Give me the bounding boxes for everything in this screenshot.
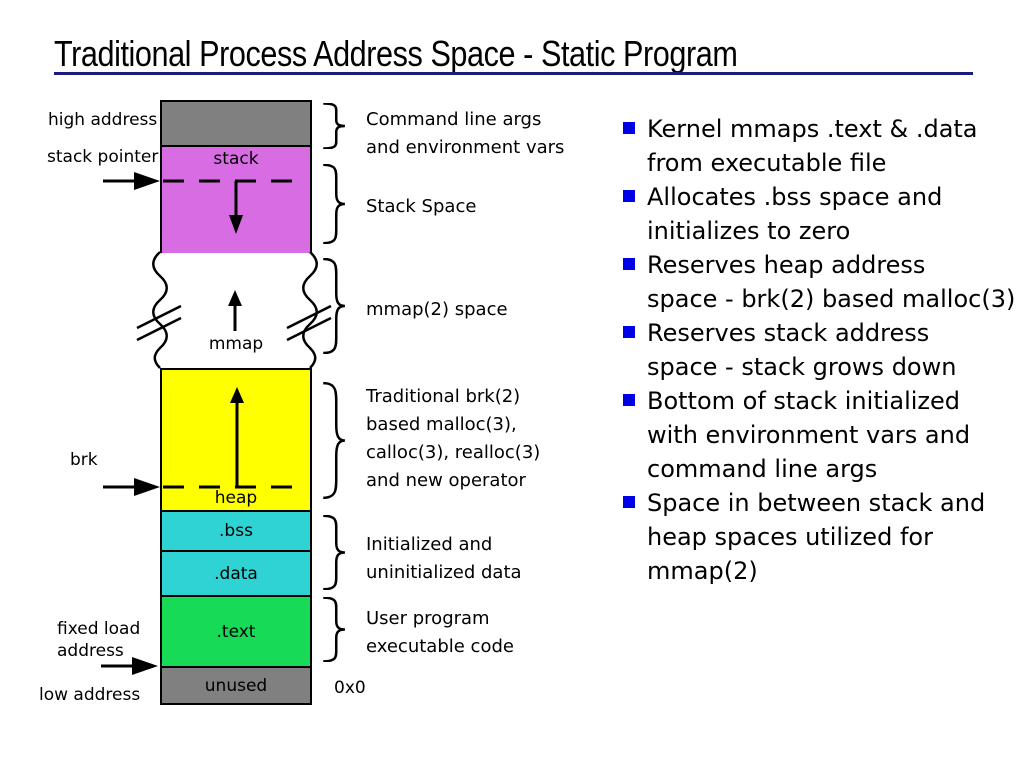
bullet-text: Allocates .bss space and initializes to …	[647, 180, 942, 248]
brace-icon	[320, 164, 346, 244]
memory-box-args-env	[160, 100, 312, 149]
box-label: stack	[213, 149, 258, 169]
brace-label-args-env: Command line args and environment vars	[366, 106, 564, 162]
bullet-text: Bottom of stack initialized with environ…	[647, 384, 970, 486]
bullet-list: Kernel mmaps .text & .data from executab…	[623, 112, 1023, 588]
label-stack-pointer: stack pointer	[47, 146, 158, 168]
brace-label-mmap-space: mmap(2) space	[366, 296, 508, 324]
label-brk: brk	[70, 449, 98, 471]
box-label: unused	[205, 676, 267, 696]
list-item: Space in between stack and heap spaces u…	[623, 486, 1023, 588]
bullet-square-icon	[623, 326, 635, 338]
bullet-square-icon	[623, 122, 635, 134]
brace-icon	[320, 382, 346, 499]
memory-box-text: .text	[160, 595, 312, 668]
list-item: Reserves heap address space - brk(2) bas…	[623, 248, 1023, 316]
brace-icon	[320, 597, 346, 662]
list-item: Reserves stack address space - stack gro…	[623, 316, 1023, 384]
memory-box-mmap: mmap	[160, 253, 312, 368]
box-label: heap	[215, 488, 257, 508]
bullet-square-icon	[623, 394, 635, 406]
memory-box-data: .data	[160, 550, 312, 597]
brace-icon	[320, 258, 346, 354]
box-label: .data	[214, 564, 258, 584]
stack-pointer-arrow	[103, 172, 160, 190]
brk-arrow	[103, 478, 160, 496]
bullet-text: Space in between stack and heap spaces u…	[647, 486, 985, 588]
box-label: mmap	[209, 334, 263, 354]
page-title: Traditional Process Address Space - Stat…	[54, 33, 737, 75]
slide: Traditional Process Address Space - Stat…	[0, 0, 1024, 768]
label-high-address: high address	[48, 109, 157, 131]
memory-box-bss: .bss	[160, 510, 312, 552]
brace-label-data-bss: Initialized and uninitialized data	[366, 531, 522, 587]
brace-label-user-code: User program executable code	[366, 605, 514, 661]
label-origin-0x0: 0x0	[334, 677, 366, 699]
label-fixed-load-address: fixed load address	[57, 618, 140, 662]
memory-box-unused: unused	[160, 666, 312, 705]
memory-box-stack: stack	[160, 145, 312, 255]
bullet-text: Kernel mmaps .text & .data from executab…	[647, 112, 978, 180]
label-low-address: low address	[39, 684, 140, 706]
bullet-text: Reserves heap address space - brk(2) bas…	[647, 248, 1015, 316]
bullet-square-icon	[623, 190, 635, 202]
brace-icon	[320, 103, 346, 149]
bullet-square-icon	[623, 258, 635, 270]
memory-box-heap: heap	[160, 368, 312, 512]
box-label: .text	[217, 622, 256, 642]
brace-icon	[320, 515, 346, 590]
brace-label-heap-malloc: Traditional brk(2) based malloc(3), call…	[366, 383, 540, 495]
brace-label-stack-space: Stack Space	[366, 193, 476, 221]
title-underline	[54, 72, 973, 75]
list-item: Kernel mmaps .text & .data from executab…	[623, 112, 1023, 180]
bullet-square-icon	[623, 496, 635, 508]
list-item: Allocates .bss space and initializes to …	[623, 180, 1023, 248]
box-label: .bss	[219, 521, 253, 541]
list-item: Bottom of stack initialized with environ…	[623, 384, 1023, 486]
bullet-text: Reserves stack address space - stack gro…	[647, 316, 956, 384]
